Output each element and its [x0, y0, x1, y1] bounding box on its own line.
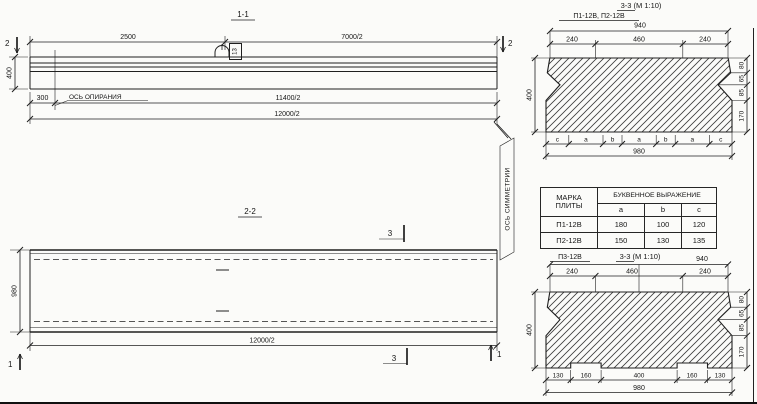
dim-7000-2: 7000/2	[341, 34, 363, 41]
slab-profile	[30, 57, 497, 89]
table-row: П2-12В 150 130 135	[541, 233, 717, 249]
cell-mark: П1-12В	[541, 217, 598, 233]
section-2-2-drawing: 2-2 3 980 12000/2 1	[0, 195, 520, 404]
dim-80: 80	[739, 61, 746, 69]
header-expr: БУКВЕННОЕ ВЫРАЖЕНИЕ	[598, 188, 717, 204]
header-mark-line2: ПЛИТЫ	[556, 201, 583, 210]
cut-label-3-bottom: 3	[392, 354, 397, 363]
dim-400-c: 400	[634, 373, 645, 380]
letter-c1: c	[556, 137, 560, 144]
dim-85: 85	[739, 324, 746, 332]
dim-400: 400	[7, 67, 14, 79]
dim-65: 65	[739, 309, 746, 317]
section-body-hatched	[546, 58, 732, 132]
dim-400: 400	[527, 324, 534, 336]
dim-130-r: 130	[715, 373, 726, 380]
dim-170: 170	[739, 110, 746, 121]
dim-11400-2: 11400/2	[276, 95, 301, 102]
dim-160-r: 160	[687, 373, 698, 380]
view-title: 3-3 (М 1:10)	[620, 252, 661, 261]
dim-240-left: 240	[566, 269, 578, 276]
plate-spec-table: МАРКА ПЛИТЫ БУКВЕННОЕ ВЫРАЖЕНИЕ a b c П1…	[540, 187, 717, 249]
dim-460: 460	[633, 37, 645, 44]
blueprint-sheet: 1-1 2500 7000/2 2 2 13	[0, 0, 757, 404]
cut-label-3-top: 3	[388, 229, 393, 238]
dim-extensions-total	[30, 108, 497, 124]
dim-240-right: 240	[699, 269, 711, 276]
letter-c2: c	[719, 137, 723, 144]
dim-940: 940	[634, 23, 646, 30]
letter-a3: a	[690, 137, 694, 144]
letter-a2: a	[637, 137, 641, 144]
dim-130-l: 130	[553, 373, 564, 380]
dim-300: 300	[37, 95, 49, 102]
letter-b2: b	[664, 137, 668, 144]
cell-a: 180	[598, 217, 645, 233]
header-mark: МАРКА ПЛИТЫ	[541, 188, 598, 217]
cross-section-bottom-drawing: П3-12В 3-3 (М 1:10) 940 240 460 240 80 6…	[522, 250, 757, 404]
support-axis-label: ОСЬ ОПИРАНИЯ	[69, 94, 122, 101]
dim-170: 170	[739, 346, 746, 357]
dim-940: 940	[696, 256, 708, 263]
dim-12000-2: 12000/2	[274, 111, 299, 118]
dim-2500: 2500	[120, 34, 136, 41]
dim-980: 980	[633, 385, 645, 392]
view-title: 3-3 (М 1:10)	[621, 1, 662, 10]
cell-b: 130	[645, 233, 682, 249]
dim-85: 85	[739, 89, 746, 97]
dim-400: 400	[527, 89, 534, 101]
plate-label: П1-12В, П2-12В	[573, 13, 625, 20]
cut-label-1-left: 1	[8, 360, 13, 369]
cell-a: 150	[598, 233, 645, 249]
dim-extensions-240	[550, 31, 728, 58]
table-row: П1-12В 180 100 120	[541, 217, 717, 233]
section-title: 1-1	[237, 10, 249, 19]
section-1-1-drawing: 1-1 2500 7000/2 2 2 13	[0, 0, 520, 195]
dim-extensions	[30, 36, 497, 57]
cell-mark: П2-12В	[541, 233, 598, 249]
cross-section-top-drawing: 3-3 (М 1:10) П1-12В, П2-12В 940 240 460 …	[522, 0, 757, 190]
dim-240-left: 240	[566, 37, 578, 44]
cell-c: 120	[682, 217, 717, 233]
col-a-header: a	[598, 204, 645, 217]
dim-160-l: 160	[581, 373, 592, 380]
dim-12000-2: 12000/2	[249, 338, 274, 345]
dim-65: 65	[739, 75, 746, 83]
cut-label-right: 2	[508, 39, 513, 48]
letter-b1: b	[611, 137, 615, 144]
flag-leader	[494, 122, 508, 138]
cut-label-left: 2	[5, 39, 10, 48]
section-title: 2-2	[244, 207, 256, 216]
cut-label-1-right: 1	[497, 350, 502, 359]
slab-plan	[30, 250, 497, 332]
letter-a1: a	[584, 137, 588, 144]
cell-b: 100	[645, 217, 682, 233]
hook-label: 13	[232, 48, 238, 55]
dim-460: 460	[626, 269, 638, 276]
dim-80: 80	[739, 296, 746, 304]
dim-980: 980	[12, 285, 19, 297]
cell-c: 135	[682, 233, 717, 249]
sheet-frame-right	[753, 28, 755, 404]
section-body-hatched	[546, 292, 732, 368]
plate-label: П3-12В	[558, 254, 582, 261]
dim-240-right: 240	[699, 37, 711, 44]
col-c-header: c	[682, 204, 717, 217]
col-b-header: b	[645, 204, 682, 217]
dim-980: 980	[633, 149, 645, 156]
table-header-row: МАРКА ПЛИТЫ БУКВЕННОЕ ВЫРАЖЕНИЕ	[541, 188, 717, 204]
